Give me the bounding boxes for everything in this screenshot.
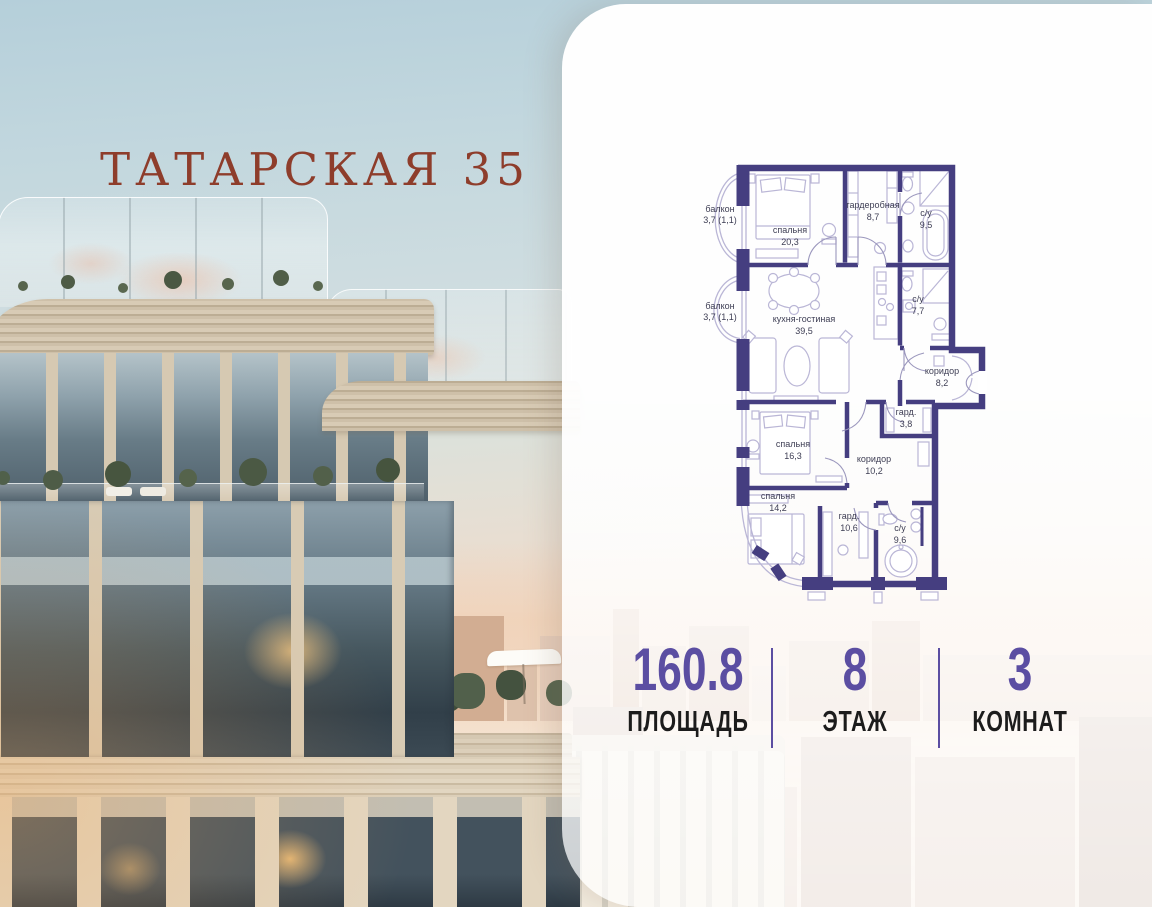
cornice-band bbox=[322, 381, 580, 431]
room-area: 8,2 bbox=[936, 378, 949, 388]
room-area: 16,3 bbox=[784, 451, 802, 461]
room-label: гард. bbox=[839, 511, 860, 521]
room-area: 8,7 bbox=[867, 212, 880, 222]
main-floor-facade bbox=[0, 501, 454, 759]
rooms-value: 3 bbox=[946, 640, 1094, 700]
room-area: 7,7 bbox=[912, 306, 925, 316]
room-label: спальня bbox=[776, 439, 810, 449]
cornice-band bbox=[0, 299, 434, 355]
floor-value: 8 bbox=[781, 640, 929, 700]
room-label: с/у bbox=[920, 208, 932, 218]
room-label: коридор bbox=[857, 454, 891, 464]
floor-slab bbox=[0, 757, 580, 799]
room-label: балкон bbox=[705, 204, 734, 214]
room-area: 10,6 bbox=[840, 523, 858, 533]
room-area: 9,5 bbox=[920, 220, 933, 230]
rooftop-plants bbox=[18, 281, 28, 291]
lounge-chairs bbox=[106, 487, 132, 496]
room-label: спальня bbox=[761, 491, 795, 501]
room-label: гард. bbox=[896, 407, 917, 417]
listing-screenshot: ТАТАРСКАЯ 35 bbox=[0, 0, 1152, 907]
room-area: 20,3 bbox=[781, 237, 799, 247]
room-label: коридор bbox=[925, 366, 959, 376]
floor-plan: балкон 3,7 (1,1) спальня 20,3 гардеробна… bbox=[690, 150, 1010, 620]
main-building bbox=[0, 195, 580, 907]
stats-row: 160.8 ПЛОЩАДЬ 8 ЭТАЖ 3 КОМНАТ bbox=[562, 640, 1152, 770]
room-area: 10,2 bbox=[865, 466, 883, 476]
area-label: ПЛОЩАДЬ bbox=[614, 708, 762, 737]
room-area: 3,8 bbox=[900, 419, 913, 429]
room-area: 9,6 bbox=[894, 535, 907, 545]
lower-floor-facade bbox=[0, 797, 580, 907]
glass-railing bbox=[0, 483, 424, 503]
room-area: 39,5 bbox=[795, 326, 813, 336]
area-value: 160.8 bbox=[614, 640, 762, 700]
room-label: с/у bbox=[894, 523, 906, 533]
room-label: кухня-гостиная bbox=[773, 314, 836, 324]
room-label: гардеробная bbox=[846, 200, 899, 210]
glass-parapet bbox=[0, 197, 328, 307]
room-label: балкон bbox=[705, 301, 734, 311]
stat-rooms: 3 КОМНАТ bbox=[920, 640, 1120, 737]
room-area: 3,7 (1,1) bbox=[703, 312, 737, 322]
project-title: ТАТАРСКАЯ 35 bbox=[85, 147, 545, 192]
apartment-card[interactable]: балкон 3,7 (1,1) спальня 20,3 гардеробна… bbox=[562, 4, 1152, 907]
entrance-opening bbox=[978, 371, 988, 394]
room-area: 3,7 (1,1) bbox=[703, 215, 737, 225]
room-area: 14,2 bbox=[769, 503, 787, 513]
room-label: спальня bbox=[773, 225, 807, 235]
room-label: с/у bbox=[912, 294, 924, 304]
rooms-label: КОМНАТ bbox=[946, 708, 1094, 737]
floor-label: ЭТАЖ bbox=[781, 708, 929, 737]
